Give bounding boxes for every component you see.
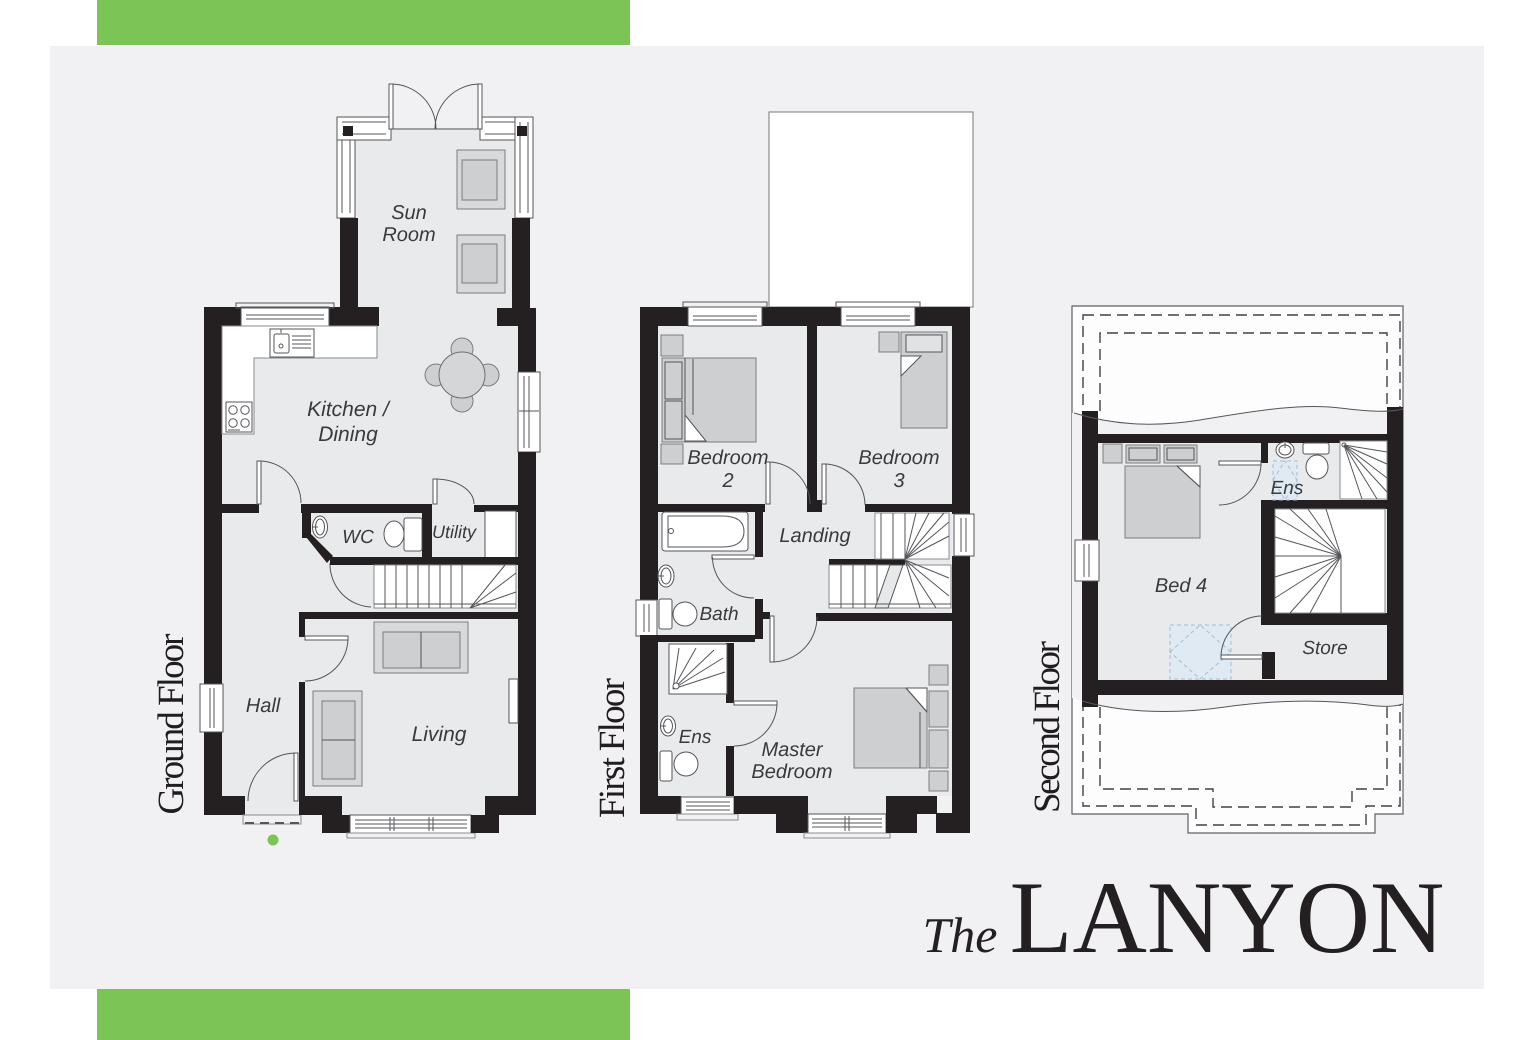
svg-text:Ground Floor: Ground Floor [151, 634, 192, 815]
svg-text:Bed 4: Bed 4 [1155, 575, 1207, 597]
svg-text:Dining: Dining [318, 423, 378, 446]
svg-text:Living: Living [412, 723, 467, 746]
svg-text:LANYON: LANYON [1010, 861, 1445, 975]
svg-text:Room: Room [382, 224, 435, 246]
svg-text:Store: Store [1302, 638, 1347, 659]
svg-text:Hall: Hall [246, 695, 281, 717]
svg-text:First Floor: First Floor [592, 678, 633, 818]
svg-text:2: 2 [721, 470, 733, 492]
svg-text:Landing: Landing [779, 525, 850, 547]
svg-text:The: The [923, 907, 998, 963]
svg-text:Second Floor: Second Floor [1027, 641, 1068, 813]
svg-text:Bedroom: Bedroom [751, 761, 832, 783]
svg-text:3: 3 [893, 470, 904, 492]
svg-text:Bath: Bath [699, 604, 738, 625]
svg-text:Master: Master [761, 739, 823, 761]
svg-text:Sun: Sun [391, 202, 427, 224]
svg-text:Ens: Ens [1271, 478, 1304, 499]
svg-text:Utility: Utility [432, 522, 477, 542]
svg-text:WC: WC [342, 527, 374, 548]
svg-text:Bedroom: Bedroom [687, 447, 768, 469]
svg-text:Kitchen /: Kitchen / [307, 398, 391, 421]
svg-text:Bedroom: Bedroom [858, 447, 939, 469]
svg-text:Ens: Ens [679, 727, 712, 748]
